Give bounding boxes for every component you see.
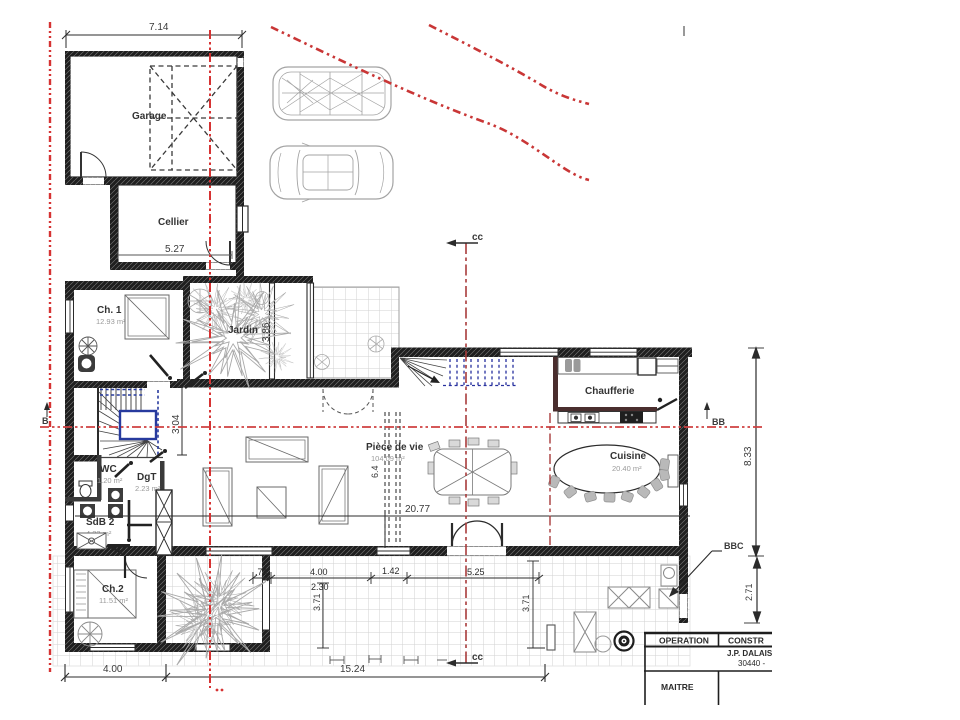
svg-text:20.77: 20.77 bbox=[405, 504, 430, 515]
svg-text:cc: cc bbox=[472, 232, 484, 243]
svg-text:5.25: 5.25 bbox=[467, 567, 485, 577]
svg-text:30440 -: 30440 - bbox=[738, 659, 765, 668]
svg-text:Cuisine: Cuisine bbox=[610, 451, 647, 462]
svg-text:7.14: 7.14 bbox=[149, 22, 169, 33]
svg-text:4.00: 4.00 bbox=[103, 664, 123, 675]
svg-text:6.4: 6.4 bbox=[370, 465, 380, 478]
svg-text:BB: BB bbox=[712, 417, 725, 427]
svg-text:B: B bbox=[42, 416, 49, 426]
svg-text:20.40 m²: 20.40 m² bbox=[612, 464, 642, 473]
svg-text:8.33: 8.33 bbox=[743, 446, 754, 466]
svg-text:3.86: 3.86 bbox=[261, 322, 272, 342]
svg-text:3.04: 3.04 bbox=[171, 414, 182, 434]
svg-text:4.00: 4.00 bbox=[310, 567, 328, 577]
svg-text:.74: .74 bbox=[255, 567, 268, 577]
svg-text:Ch. 1: Ch. 1 bbox=[97, 305, 122, 316]
svg-text:WC: WC bbox=[100, 464, 117, 475]
svg-text:CONSTR: CONSTR bbox=[728, 636, 764, 646]
svg-text:Chaufferie: Chaufferie bbox=[585, 386, 635, 397]
svg-text:SdB 2: SdB 2 bbox=[86, 517, 115, 528]
svg-text:2.30: 2.30 bbox=[311, 582, 329, 592]
svg-text:OPERATION: OPERATION bbox=[659, 636, 709, 646]
svg-text:Ch.2: Ch.2 bbox=[102, 584, 124, 595]
svg-text:Jardin: Jardin bbox=[228, 325, 258, 336]
svg-text:cc: cc bbox=[472, 652, 484, 663]
svg-text:3.71: 3.71 bbox=[312, 593, 322, 611]
svg-text:Garage: Garage bbox=[132, 111, 167, 122]
svg-text:11.51 m²: 11.51 m² bbox=[99, 596, 129, 605]
svg-text:1.20 m²: 1.20 m² bbox=[97, 476, 123, 485]
svg-text:1.42: 1.42 bbox=[382, 566, 400, 576]
svg-text:BBC: BBC bbox=[724, 541, 744, 551]
svg-text:5.27: 5.27 bbox=[165, 244, 185, 255]
svg-text:3.71: 3.71 bbox=[521, 594, 531, 612]
svg-text:DgT: DgT bbox=[137, 472, 156, 483]
svg-text:MAITRE: MAITRE bbox=[661, 682, 694, 692]
svg-text:104.09 m²: 104.09 m² bbox=[371, 454, 405, 463]
svg-text:15.24: 15.24 bbox=[340, 664, 365, 675]
svg-text:Pièce de vie: Pièce de vie bbox=[366, 442, 424, 453]
svg-text:2.71: 2.71 bbox=[744, 583, 754, 601]
svg-text:J.P. DALAIS: J.P. DALAIS bbox=[727, 649, 773, 658]
svg-text:Cellier: Cellier bbox=[158, 217, 189, 228]
svg-text:12.93 m²: 12.93 m² bbox=[96, 317, 126, 326]
